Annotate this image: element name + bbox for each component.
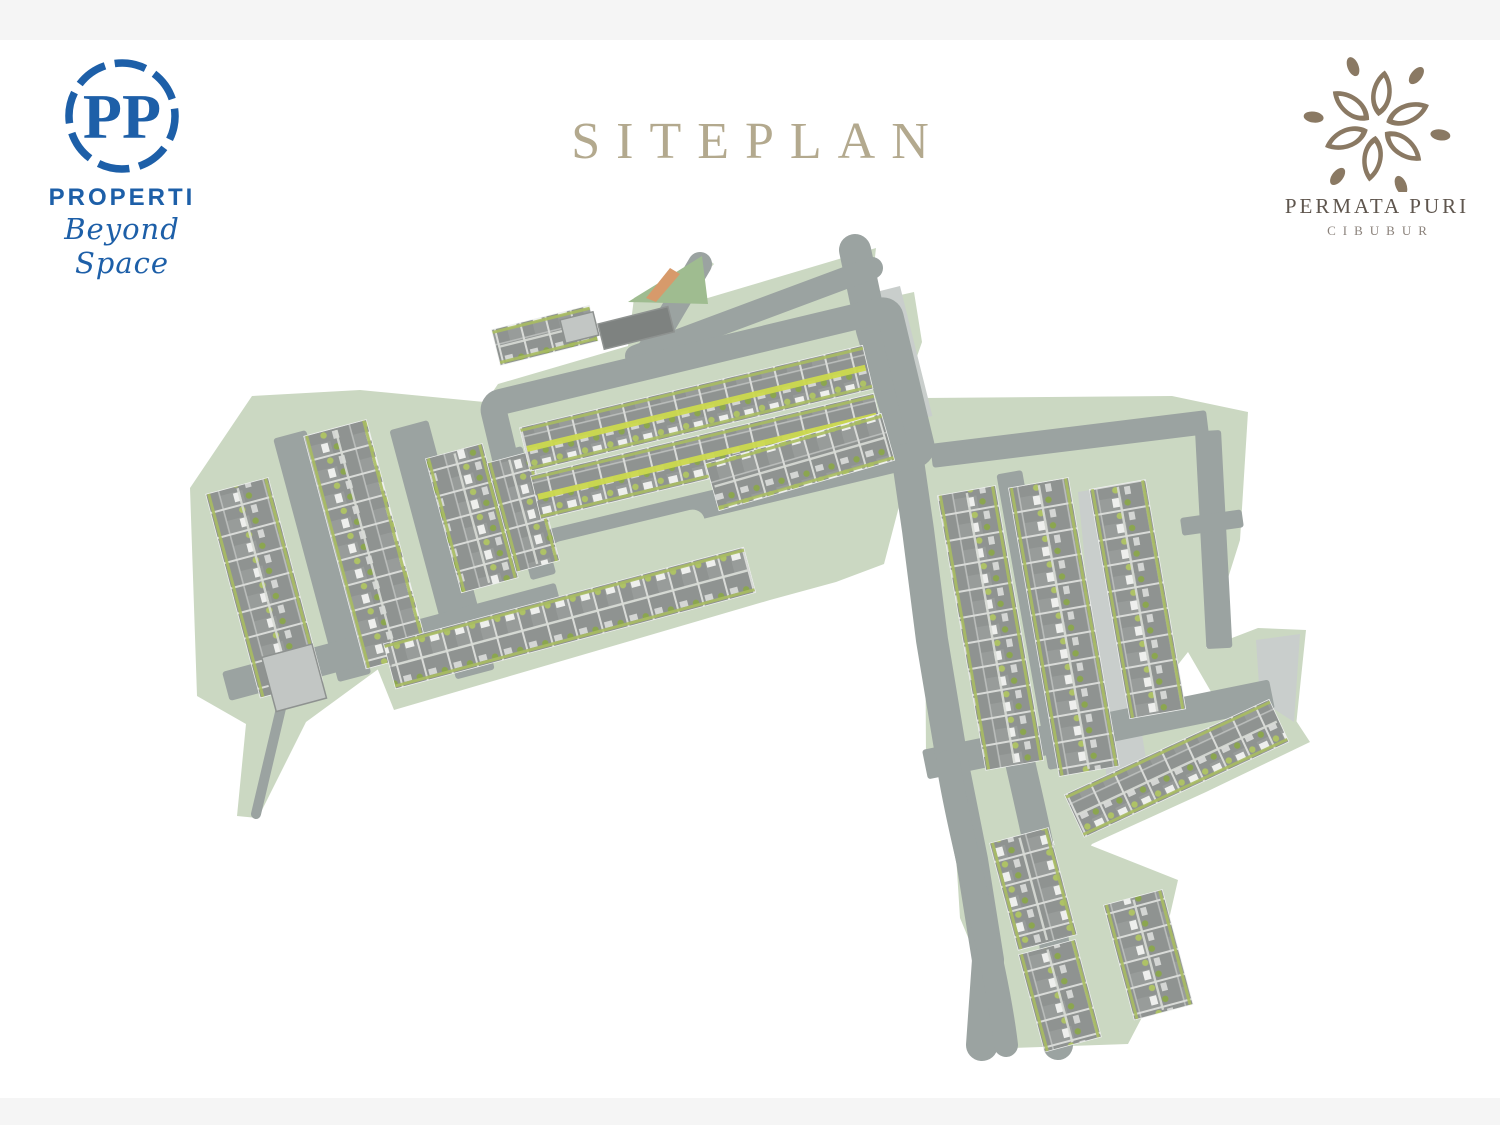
flower-icon xyxy=(1292,52,1462,192)
pp-company-name: PROPERTI xyxy=(34,184,210,212)
siteplan-slide: PP PROPERTI Beyond Space SITEPLAN PERMAT… xyxy=(0,0,1500,1125)
permata-puri-logo: PERMATA PURI CIBUBUR xyxy=(1272,52,1482,239)
flower-petals xyxy=(1303,55,1451,192)
project-name: PERMATA PURI xyxy=(1272,194,1482,219)
project-location: CIBUBUR xyxy=(1272,223,1482,239)
pp-tagline: Beyond Space xyxy=(34,212,210,280)
